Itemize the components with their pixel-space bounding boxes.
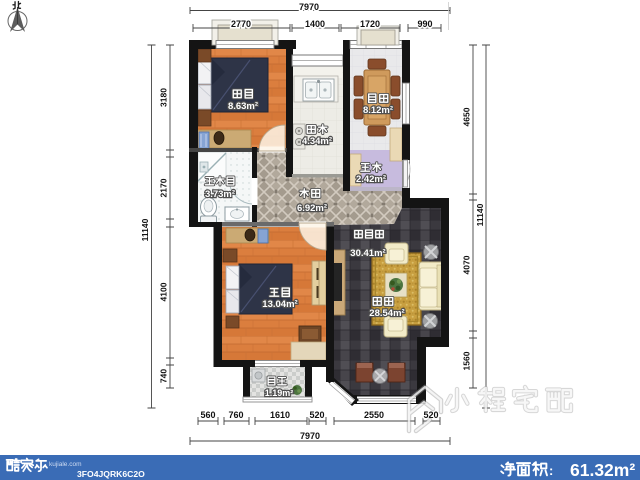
svg-text:8.63m²: 8.63m²: [228, 101, 258, 112]
svg-text:2.42m²: 2.42m²: [356, 174, 386, 185]
svg-text:28.54m²: 28.54m²: [369, 308, 404, 319]
svg-text:560: 560: [200, 410, 215, 420]
svg-text:3.73m²: 3.73m²: [205, 189, 235, 200]
svg-text:7970: 7970: [300, 431, 320, 441]
svg-text:760: 760: [228, 410, 243, 420]
svg-text:30.41m²: 30.41m²: [350, 248, 385, 259]
svg-text:1610: 1610: [270, 410, 290, 420]
svg-text:3180: 3180: [159, 88, 169, 107]
svg-text:4.34m²: 4.34m²: [302, 136, 332, 147]
svg-text:11140: 11140: [140, 218, 150, 241]
svg-text:3FO4JQRK6C2O: 3FO4JQRK6C2O: [77, 469, 145, 479]
svg-text:1720: 1720: [360, 19, 380, 29]
svg-text:7970: 7970: [299, 2, 319, 12]
svg-text:990: 990: [417, 19, 432, 29]
svg-text:2770: 2770: [231, 19, 251, 29]
svg-text:4100: 4100: [159, 282, 169, 301]
svg-text::: :: [549, 463, 553, 478]
svg-text:1560: 1560: [462, 351, 472, 370]
svg-text:11140: 11140: [475, 203, 485, 226]
svg-text:520: 520: [309, 410, 324, 420]
svg-text:kujiale.com: kujiale.com: [49, 461, 82, 468]
svg-text:740: 740: [159, 369, 169, 383]
svg-text:2170: 2170: [159, 178, 169, 197]
svg-text:4650: 4650: [462, 107, 472, 126]
svg-text:61.32m²: 61.32m²: [570, 460, 635, 480]
svg-text:1.19m²: 1.19m²: [265, 388, 294, 398]
svg-text:13.04m²: 13.04m²: [262, 299, 297, 310]
svg-text:2550: 2550: [364, 410, 384, 420]
svg-text:1400: 1400: [305, 19, 325, 29]
svg-text:8.12m²: 8.12m²: [363, 105, 393, 116]
svg-text:4070: 4070: [462, 255, 472, 274]
svg-text:6.92m²: 6.92m²: [297, 203, 327, 214]
